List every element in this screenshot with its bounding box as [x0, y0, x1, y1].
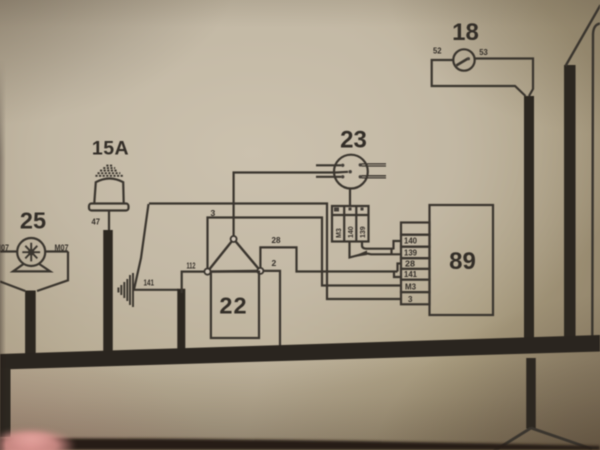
- svg-text:23: 23: [340, 127, 367, 154]
- svg-text:3: 3: [408, 295, 413, 304]
- svg-text:15A: 15A: [92, 138, 129, 160]
- svg-text:M3: M3: [336, 228, 343, 238]
- svg-text:28: 28: [272, 235, 281, 245]
- svg-text:141: 141: [404, 270, 418, 279]
- svg-text:140: 140: [404, 237, 418, 246]
- svg-text:28: 28: [405, 260, 416, 269]
- svg-text:53: 53: [479, 48, 488, 57]
- svg-text:140: 140: [348, 226, 355, 238]
- svg-text:2: 2: [272, 258, 277, 268]
- svg-text:141: 141: [144, 278, 155, 288]
- svg-text:112: 112: [187, 260, 196, 270]
- svg-text:25: 25: [20, 208, 46, 234]
- svg-text:52: 52: [433, 46, 442, 55]
- svg-text:89: 89: [449, 248, 476, 275]
- svg-text:139: 139: [360, 226, 367, 238]
- svg-text:47: 47: [92, 217, 101, 227]
- svg-text:M07: M07: [55, 243, 69, 253]
- svg-text:18: 18: [452, 19, 479, 46]
- svg-text:3: 3: [211, 208, 216, 218]
- svg-text:22: 22: [219, 293, 247, 319]
- svg-text:139: 139: [404, 249, 418, 258]
- svg-text:M3: M3: [405, 282, 417, 291]
